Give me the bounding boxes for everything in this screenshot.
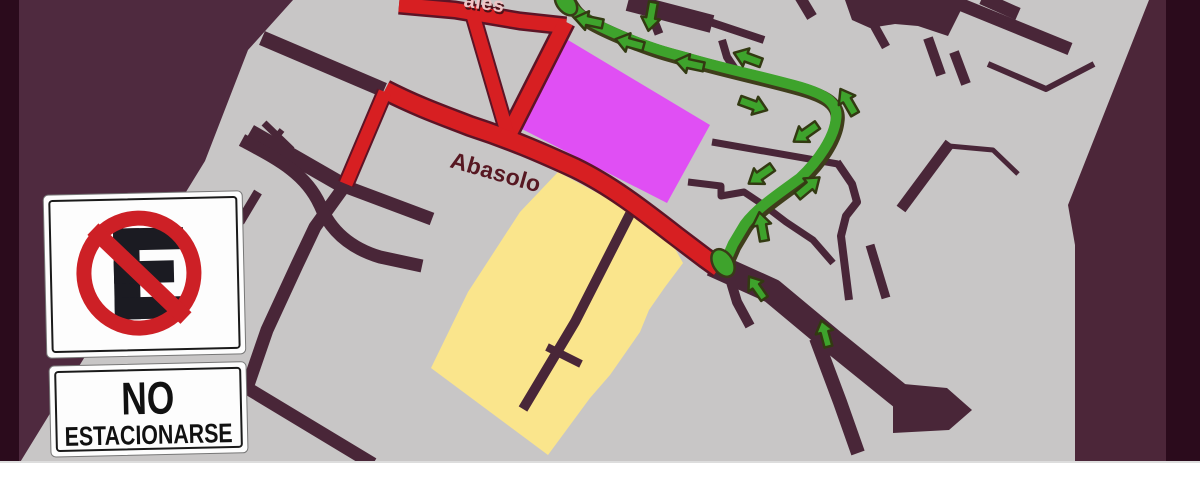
svg-text:ESTACIONARSE: ESTACIONARSE	[64, 418, 233, 452]
svg-text:NO: NO	[121, 371, 175, 424]
